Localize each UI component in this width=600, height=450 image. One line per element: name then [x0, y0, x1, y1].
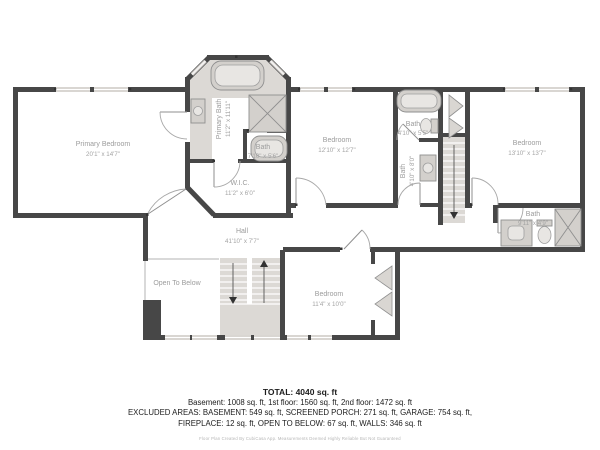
room-dims-primary-bedroom: 20'1" x 14'7" — [86, 151, 120, 158]
area-summary: TOTAL: 4040 sq. ft Basement: 1008 sq. ft… — [0, 387, 600, 429]
shower-icon — [249, 95, 286, 132]
shower-icon — [555, 209, 581, 246]
floor-areas-text: Basement: 1008 sq. ft, 1st floor: 1560 s… — [0, 398, 600, 408]
sink-icon — [420, 155, 436, 181]
credit-text: Floor Plan Created By CubiCasa App. Meas… — [0, 436, 600, 441]
room-label-bath-top: Bath — [406, 121, 421, 128]
room-dims-bath-top: 4'10" x 5'5" — [398, 130, 429, 137]
room-label-bath-center: Bath — [400, 164, 407, 179]
room-label-bedroom-right: Bedroom — [513, 140, 542, 147]
excluded-areas-text-1: EXCLUDED AREAS: BASEMENT: 549 sq. ft, SC… — [0, 408, 600, 418]
stairs-lower — [220, 258, 280, 335]
floor-plan-page: Primary Bedroom 20'1" x 14'7" Primary Ba… — [0, 0, 600, 450]
room-dims-hall: 41'10" x 7'7" — [225, 238, 259, 245]
walls — [13, 55, 585, 340]
room-label-bedroom-middle: Bedroom — [323, 137, 352, 144]
room-dims-bedroom-middle: 12'10" x 12'7" — [318, 147, 355, 154]
room-label-bath-right: Bath — [526, 211, 541, 218]
excluded-areas-text-2: FIREPLACE: 12 sq. ft, OPEN TO BELOW: 67 … — [0, 419, 600, 429]
sink-icon — [191, 99, 205, 123]
room-label-open-to-below: Open To Below — [153, 280, 201, 287]
room-dims-bedroom-right: 13'10" x 13'7" — [508, 150, 545, 157]
room-labels: Primary Bedroom 20'1" x 14'7" Primary Ba… — [76, 99, 548, 308]
room-label-hall: Hall — [236, 228, 249, 235]
room-dims-bath-ensuite: 7'10" x 5'6" — [248, 153, 279, 160]
room-dims-bath-right: 9'11" x 4'9" — [518, 220, 548, 227]
bathtub-icon — [397, 90, 441, 112]
room-label-wic: W.I.C. — [230, 180, 249, 187]
total-area-text: TOTAL: 4040 sq. ft — [0, 387, 600, 398]
room-dims-bedroom-bottom: 11'4" x 10'0" — [312, 301, 345, 308]
windows — [56, 61, 569, 340]
room-label-bath-ensuite: Bath — [256, 144, 271, 151]
bathtub-icon — [211, 61, 264, 90]
room-label-primary-bedroom: Primary Bedroom — [76, 141, 131, 148]
room-dims-bath-center: 4'10" x 8'0" — [409, 156, 416, 187]
room-dims-wic: 11'2" x 6'0" — [225, 190, 255, 197]
room-dims-primary-bath: 11'2" x 11'11" — [225, 101, 232, 137]
room-label-bedroom-bottom: Bedroom — [315, 291, 344, 298]
stairs-upper — [443, 137, 465, 223]
room-label-primary-bath: Primary Bath — [216, 99, 223, 140]
floor-plan-drawing: Primary Bedroom 20'1" x 14'7" Primary Ba… — [0, 0, 600, 378]
